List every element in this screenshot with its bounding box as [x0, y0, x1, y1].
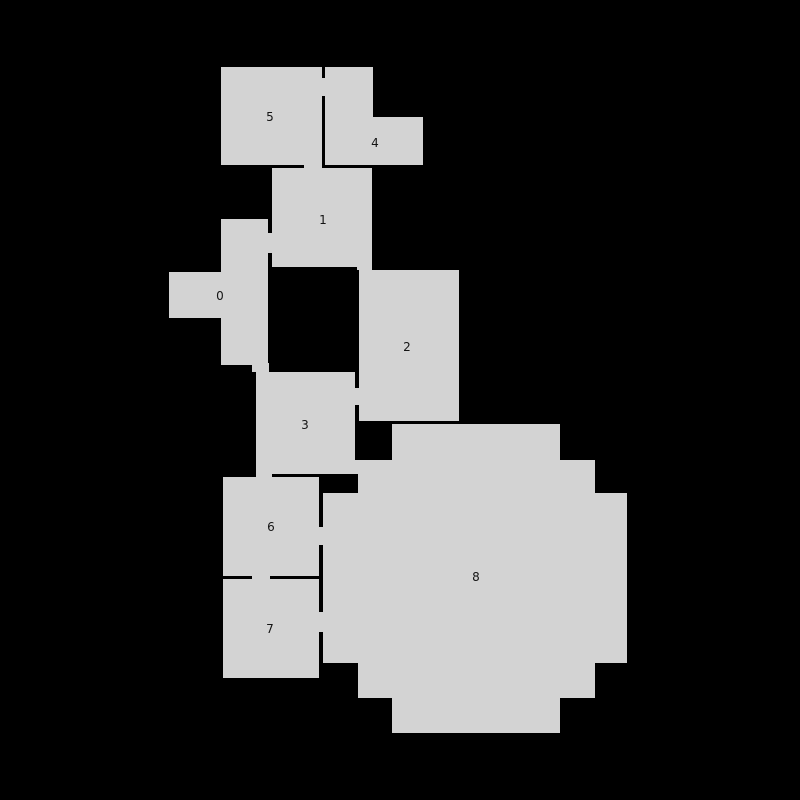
- door-opening: [322, 78, 325, 96]
- wall: [392, 421, 458, 424]
- room-8-label: 8: [472, 571, 480, 583]
- room-6-label: 6: [267, 521, 275, 533]
- room-5-label: 5: [266, 111, 274, 123]
- wall: [272, 165, 373, 168]
- room-2-label: 2: [403, 341, 411, 353]
- room-0-area: [169, 272, 221, 318]
- door-opening: [256, 474, 272, 477]
- room-8-area: [392, 698, 560, 733]
- dungeon-map: 012345678: [0, 0, 800, 800]
- room-8-area: [358, 663, 595, 698]
- door-opening: [268, 233, 272, 253]
- wall: [223, 576, 319, 579]
- wall: [319, 477, 323, 678]
- door-opening: [252, 576, 270, 579]
- room-8-area: [358, 460, 595, 493]
- door-opening: [304, 165, 322, 168]
- door-opening: [319, 527, 323, 545]
- door-opening: [319, 612, 323, 632]
- room-4-label: 4: [371, 137, 379, 149]
- room-4-area: [324, 67, 373, 165]
- room-4-area: [373, 117, 423, 165]
- room-3-label: 3: [301, 419, 309, 431]
- door-opening: [355, 388, 359, 405]
- door-opening: [252, 363, 269, 372]
- door-opening: [357, 267, 372, 270]
- room-7-label: 7: [266, 623, 274, 635]
- room-1-label: 1: [319, 214, 327, 226]
- door-opening: [355, 460, 358, 474]
- room-8-area: [392, 424, 560, 460]
- room-0-area: [221, 219, 268, 365]
- room-0-label: 0: [216, 290, 224, 302]
